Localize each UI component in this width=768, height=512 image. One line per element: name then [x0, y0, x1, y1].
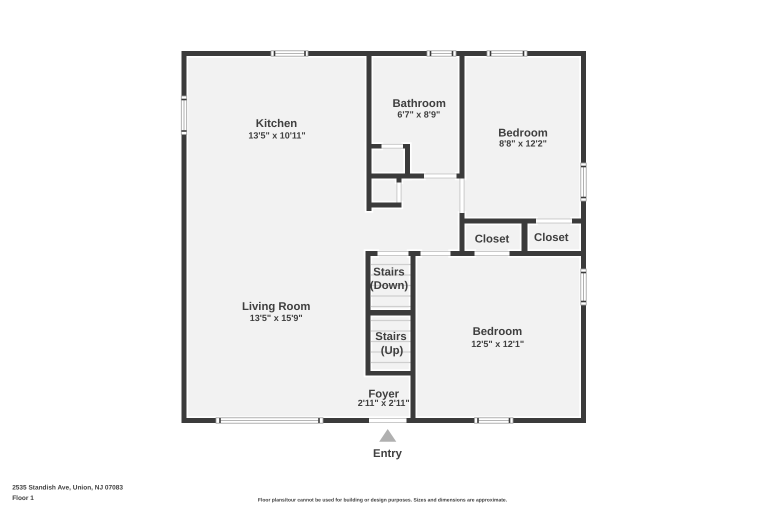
svg-text:Stairs: Stairs — [375, 331, 406, 343]
svg-text:Floor 1: Floor 1 — [12, 495, 34, 502]
svg-text:Bedroom: Bedroom — [473, 326, 523, 338]
svg-text:12'5" x 12'1": 12'5" x 12'1" — [471, 339, 524, 349]
svg-text:Living Room: Living Room — [242, 301, 310, 313]
svg-text:(Up): (Up) — [381, 345, 404, 357]
svg-text:Floor plans/tour cannot be use: Floor plans/tour cannot be used for buil… — [258, 498, 508, 504]
svg-text:Bathroom: Bathroom — [393, 98, 446, 110]
svg-text:2535 Standish Ave, Union, NJ 0: 2535 Standish Ave, Union, NJ 07083 — [12, 485, 123, 492]
svg-text:Closet: Closet — [534, 232, 569, 244]
svg-text:Entry: Entry — [373, 448, 403, 460]
svg-text:6'7" x 8'9": 6'7" x 8'9" — [397, 110, 440, 120]
svg-text:13'5" x 15'9": 13'5" x 15'9" — [250, 313, 303, 323]
svg-text:Kitchen: Kitchen — [256, 118, 298, 130]
svg-text:2'11" x 2'11": 2'11" x 2'11" — [358, 398, 410, 408]
svg-text:Stairs: Stairs — [373, 267, 404, 279]
svg-text:(Down): (Down) — [370, 280, 409, 292]
svg-text:8'8" x 12'2": 8'8" x 12'2" — [499, 139, 547, 149]
svg-text:13'5" x 10'11": 13'5" x 10'11" — [248, 131, 305, 141]
svg-text:Closet: Closet — [475, 234, 510, 246]
